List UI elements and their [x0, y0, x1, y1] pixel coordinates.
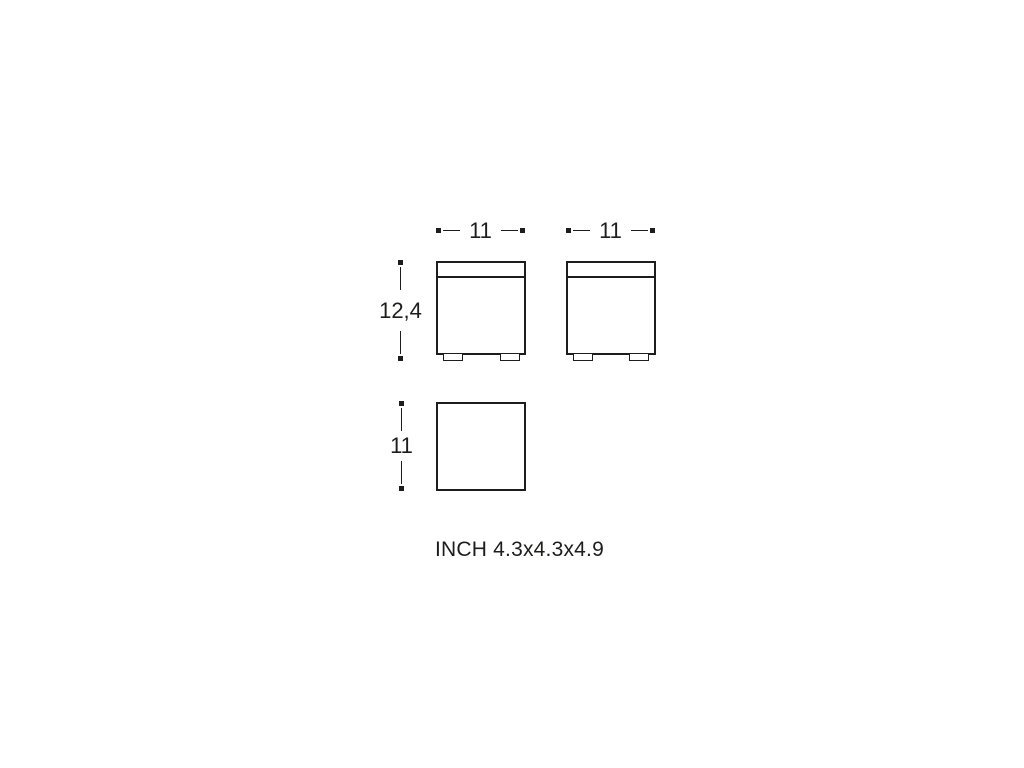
- height-dimension: 12,4: [398, 260, 403, 361]
- width-dimension-right: 11: [566, 228, 655, 233]
- dimension-line-segment: [401, 408, 403, 431]
- lid-seam-line: [438, 276, 524, 278]
- foot: [629, 353, 649, 361]
- caption-inch-dimensions: INCH 4.3x4.3x4.9: [435, 539, 604, 560]
- depth-dimension: 11: [399, 401, 404, 491]
- dimension-line-segment: [401, 461, 403, 484]
- dimension-endpoint-marker: [398, 356, 403, 361]
- front-view-right: [566, 261, 656, 355]
- lid-seam-line: [568, 276, 654, 278]
- dimension-line-segment: [400, 267, 402, 290]
- foot: [443, 353, 463, 361]
- dimension-endpoint-marker: [398, 260, 403, 265]
- top-view: [436, 402, 526, 491]
- dimension-endpoint-marker: [436, 228, 441, 233]
- width-dimension-left-label: 11: [469, 220, 492, 242]
- width-dimension-right-label: 11: [599, 220, 622, 242]
- dimension-line-segment: [501, 230, 518, 232]
- depth-dimension-label: 11: [390, 435, 413, 457]
- width-dimension-left: 11: [436, 228, 525, 233]
- dimension-line-segment: [631, 230, 648, 232]
- foot: [573, 353, 593, 361]
- dimension-endpoint-marker: [566, 228, 571, 233]
- height-dimension-label: 12,4: [379, 300, 422, 322]
- dimension-line-segment: [573, 230, 590, 232]
- dimension-endpoint-marker: [399, 401, 404, 406]
- dimension-drawing-canvas: 11 11 12,4 11 INCH 4.3x4.3x4.9: [0, 0, 1024, 768]
- dimension-line-segment: [443, 230, 460, 232]
- dimension-endpoint-marker: [650, 228, 655, 233]
- dimension-endpoint-marker: [520, 228, 525, 233]
- dimension-line-segment: [400, 331, 402, 354]
- dimension-endpoint-marker: [399, 486, 404, 491]
- foot: [500, 353, 520, 361]
- front-view-left: [436, 261, 526, 355]
